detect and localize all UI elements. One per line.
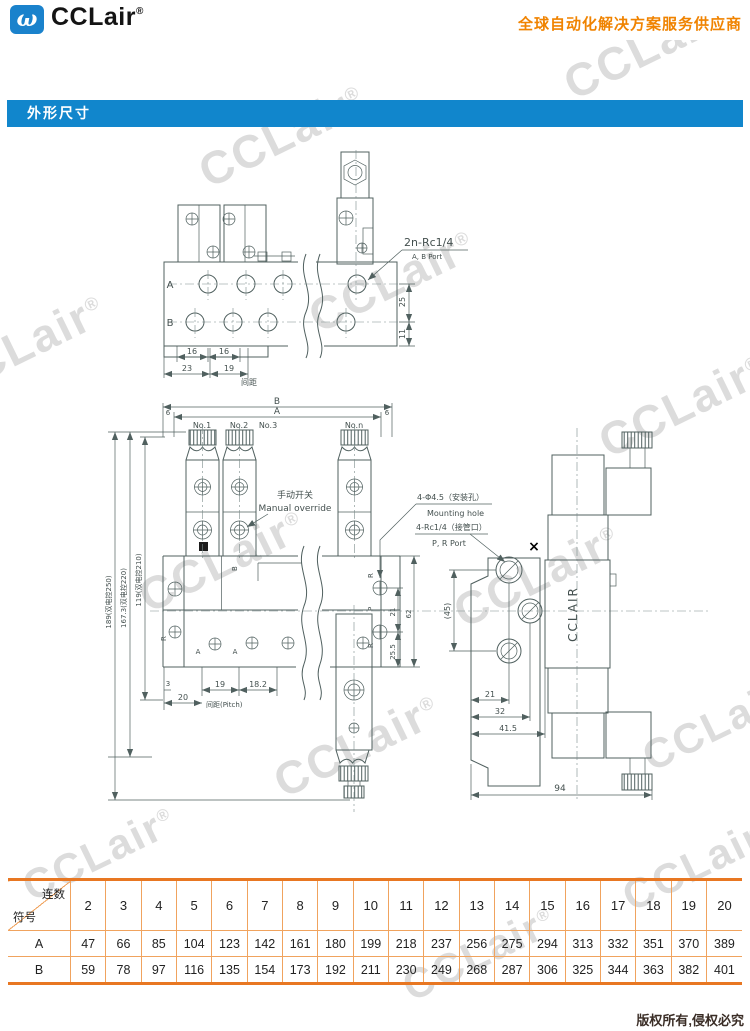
front-view: B A 6 6 No.1 No.2 No.3 No.n (104, 397, 708, 812)
side-dim-21: 21 (485, 690, 495, 699)
brand-logo-icon: ω (10, 5, 44, 34)
table-cell: 275 (494, 931, 529, 957)
table-cell: 135 (212, 957, 247, 984)
station-label-2: No.2 (230, 421, 248, 430)
front-dim-21: 21 (389, 608, 397, 617)
table-cell: 237 (424, 931, 459, 957)
station-label-n: No.n (345, 421, 363, 430)
side-dim-45: (45) (443, 603, 452, 619)
table-cell: 85 (141, 931, 176, 957)
pipe-port-callout-en: P, R Port (432, 539, 466, 548)
top-view-dim-11: 11 (398, 329, 407, 339)
table-cell: 161 (282, 931, 317, 957)
ab-port-callout: 2n-Rc1/4 (404, 236, 453, 249)
table-cell: 66 (106, 931, 141, 957)
table-cell: 142 (247, 931, 282, 957)
table-cell: 401 (706, 957, 742, 984)
column-header: 6 (212, 880, 247, 931)
front-view-dim-6-right: 6 (385, 409, 390, 417)
column-header: 16 (565, 880, 600, 931)
column-header: 19 (671, 880, 706, 931)
dimension-drawing: A B 2n-Rc1/4 A, B Port 25 11 16 16 23 19… (0, 130, 750, 870)
front-dim-18-2: 18.2 (249, 680, 267, 689)
top-view-dim-16a: 16 (187, 347, 197, 356)
column-header: 15 (530, 880, 565, 931)
column-header: 14 (494, 880, 529, 931)
column-header: 5 (176, 880, 211, 931)
front-view-dim-B: B (274, 397, 280, 407)
port-label-p: P (367, 607, 375, 611)
station-label-3: No.3 (259, 421, 277, 430)
table-cell: 230 (388, 957, 423, 984)
port-label-a2: A (233, 648, 238, 656)
front-view-dim-A: A (274, 407, 281, 417)
manual-override-label-en: Manual override (259, 504, 332, 514)
header-tagline: 全球自动化解决方案服务供应商 (518, 13, 742, 34)
row-label: A (8, 931, 71, 957)
front-view-dim-6-left: 6 (166, 409, 171, 417)
port-label-r-left: R (160, 636, 168, 641)
column-header: 18 (636, 880, 671, 931)
column-header: 20 (706, 880, 742, 931)
table-cell: 199 (353, 931, 388, 957)
column-header: 7 (247, 880, 282, 931)
table-cell: 218 (388, 931, 423, 957)
table-cell: 249 (424, 957, 459, 984)
dimension-table: 连数符号234567891011121314151617181920A47668… (8, 878, 742, 985)
page-header: ω CCLair® 全球自动化解决方案服务供应商 (0, 0, 750, 40)
corner-label-top: 连数 (42, 886, 65, 902)
table-cell: 370 (671, 931, 706, 957)
table-corner-cell: 连数符号 (8, 880, 71, 931)
ab-port-callout-sub: A, B Port (412, 253, 442, 261)
front-dim-20: 20 (178, 693, 188, 702)
port-label-r-bottom: R (367, 643, 375, 648)
front-dim-19: 19 (215, 680, 225, 689)
column-header: 12 (424, 880, 459, 931)
table-cell: 332 (600, 931, 635, 957)
mounting-hole-callout-en: Mounting hole (427, 509, 484, 518)
top-view-dim-19: 19 (224, 364, 234, 373)
column-header: 2 (71, 880, 106, 931)
front-pitch-label: 间距(Pitch) (206, 701, 243, 709)
side-dim-41-5: 41.5 (499, 724, 517, 733)
table-cell: 287 (494, 957, 529, 984)
top-view-pitch-label: 间距 (241, 378, 257, 387)
table-cell: 47 (71, 931, 106, 957)
column-header: 8 (282, 880, 317, 931)
table-cell: 180 (318, 931, 353, 957)
top-view-dim-23: 23 (182, 364, 192, 373)
column-header: 13 (459, 880, 494, 931)
table-cell: 116 (176, 957, 211, 984)
table-cell: 192 (318, 957, 353, 984)
column-header: 4 (141, 880, 176, 931)
valve-body-brand-text: CCLAIR (566, 586, 580, 642)
registered-mark: ® (136, 6, 144, 17)
section-banner: 外形尺寸 (7, 100, 743, 127)
table-cell: 294 (530, 931, 565, 957)
front-dim-3: 3 (166, 680, 170, 688)
table-cell: 256 (459, 931, 494, 957)
table-cell: 104 (176, 931, 211, 957)
table-cell: 325 (565, 957, 600, 984)
catalog-page: CCLair®CCLair®CCLair®CCLair®CCLair®CCLai… (0, 0, 750, 1031)
height-dim-3: 119(双电控210) (134, 553, 143, 606)
height-dim-2: 167.3(双电控220) (119, 568, 128, 628)
side-dim-32: 32 (495, 707, 505, 716)
row-label: B (8, 957, 71, 984)
front-dim-25-5: 25.5 (389, 644, 397, 660)
table-cell: 389 (706, 931, 742, 957)
port-label-a1: A (196, 648, 201, 656)
manual-override-label-cn: 手动开关 (277, 489, 313, 501)
table-cell: 78 (106, 957, 141, 984)
table-cell: 382 (671, 957, 706, 984)
x-marker: × (528, 539, 540, 555)
table-cell: 211 (353, 957, 388, 984)
column-header: 17 (600, 880, 635, 931)
column-header: 10 (353, 880, 388, 931)
top-view-row-a-label: A (167, 280, 174, 291)
table-cell: 154 (247, 957, 282, 984)
port-label-b: B (231, 566, 239, 571)
table-cell: 306 (530, 957, 565, 984)
side-view: (45) CCLAIR 21 32 41.5 94 (443, 428, 652, 800)
column-header: 3 (106, 880, 141, 931)
table-cell: 344 (600, 957, 635, 984)
station-label-1: No.1 (193, 421, 211, 430)
column-header: 9 (318, 880, 353, 931)
table-row: B597897116135154173192211230249268287306… (8, 957, 742, 984)
table-cell: 363 (636, 957, 671, 984)
table-cell: 351 (636, 931, 671, 957)
height-dim-1: 189(双电控250) (104, 575, 113, 628)
top-view-row-b-label: B (167, 318, 174, 329)
mounting-hole-callout-cn: 4-Φ4.5（安装孔） (417, 492, 484, 502)
table-cell: 123 (212, 931, 247, 957)
pipe-port-callout-cn: 4-Rc1/4（接管口） (416, 522, 487, 532)
front-dim-62: 62 (405, 610, 413, 619)
top-view-dim-25: 25 (398, 297, 407, 307)
table-cell: 173 (282, 957, 317, 984)
table-row: A476685104123142161180199218237256275294… (8, 931, 742, 957)
top-view: A B 2n-Rc1/4 A, B Port 25 11 16 16 23 19… (164, 150, 468, 387)
table-cell: 268 (459, 957, 494, 984)
port-label-r-top: R (367, 573, 375, 578)
table-cell: 59 (71, 957, 106, 984)
copyright-notice: 版权所有,侵权必究 (636, 1010, 744, 1029)
side-dim-94: 94 (554, 784, 566, 794)
brand-text: CCLair (51, 3, 136, 31)
table-cell: 313 (565, 931, 600, 957)
column-header: 11 (388, 880, 423, 931)
corner-label-bottom: 符号 (13, 909, 36, 925)
table-cell: 97 (141, 957, 176, 984)
top-view-dim-16b: 16 (219, 347, 229, 356)
brand-name: CCLair® (51, 3, 144, 32)
